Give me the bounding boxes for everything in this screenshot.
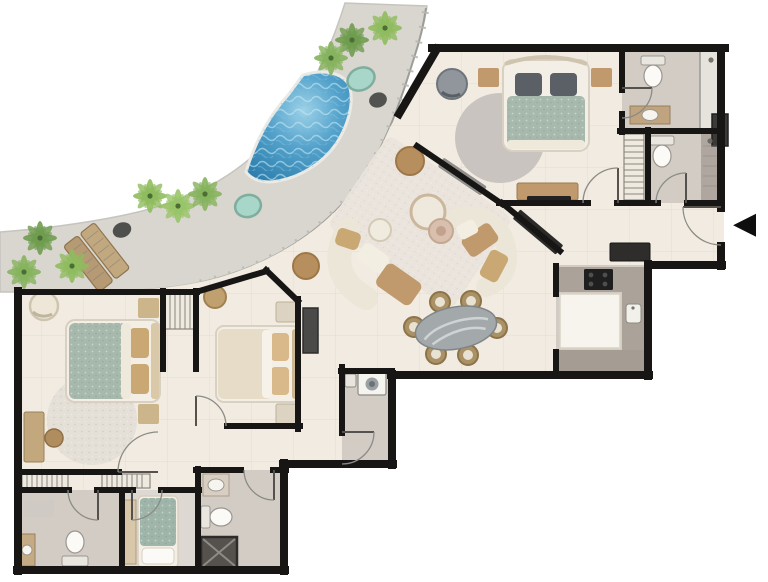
nightstand [276,302,296,322]
closet-slatted-hall [624,134,644,200]
bedroom-3-bed [216,326,300,402]
shower-head-icon [707,138,712,143]
bath-mat [24,500,54,517]
toilet-icon [201,506,232,528]
cooktop-icon [584,269,613,290]
nightstand [276,404,296,424]
kitchen-counter-bottom [557,350,646,373]
master-nightstand-left [478,68,499,87]
bedroom-2-bed [66,320,160,402]
shower-head-icon [708,57,713,62]
master-armchair [437,69,467,99]
nightstand [138,298,159,318]
floor-plan-canvas: ◀ [0,0,768,582]
entry-direction-arrow-icon: ◀ [733,209,756,239]
wardrobe-dark [303,308,318,353]
staff-single-bed [138,496,178,568]
master-nightstand-right [591,68,612,87]
dark-shower-cabin [201,537,237,568]
bedroom-2-armchair [30,292,58,320]
floor-pouf-2 [293,253,319,279]
washing-machine-icon [358,372,386,395]
closet-slatted-nook-b [102,474,150,488]
kitchen-island [560,294,620,348]
lounge-chair-cream [369,219,391,241]
master-bed [503,57,589,151]
kitchen-sink-icon [626,304,641,323]
closet-slatted-nook-a [22,474,68,488]
nightstand [138,404,159,424]
vanity-sink [203,474,229,496]
floor-plan-drawing [0,0,768,582]
laundry-sink [345,374,356,387]
hall-tv-console [610,243,650,261]
closet-slatted-bedrooms [165,293,195,329]
staff-vanity [124,500,136,564]
